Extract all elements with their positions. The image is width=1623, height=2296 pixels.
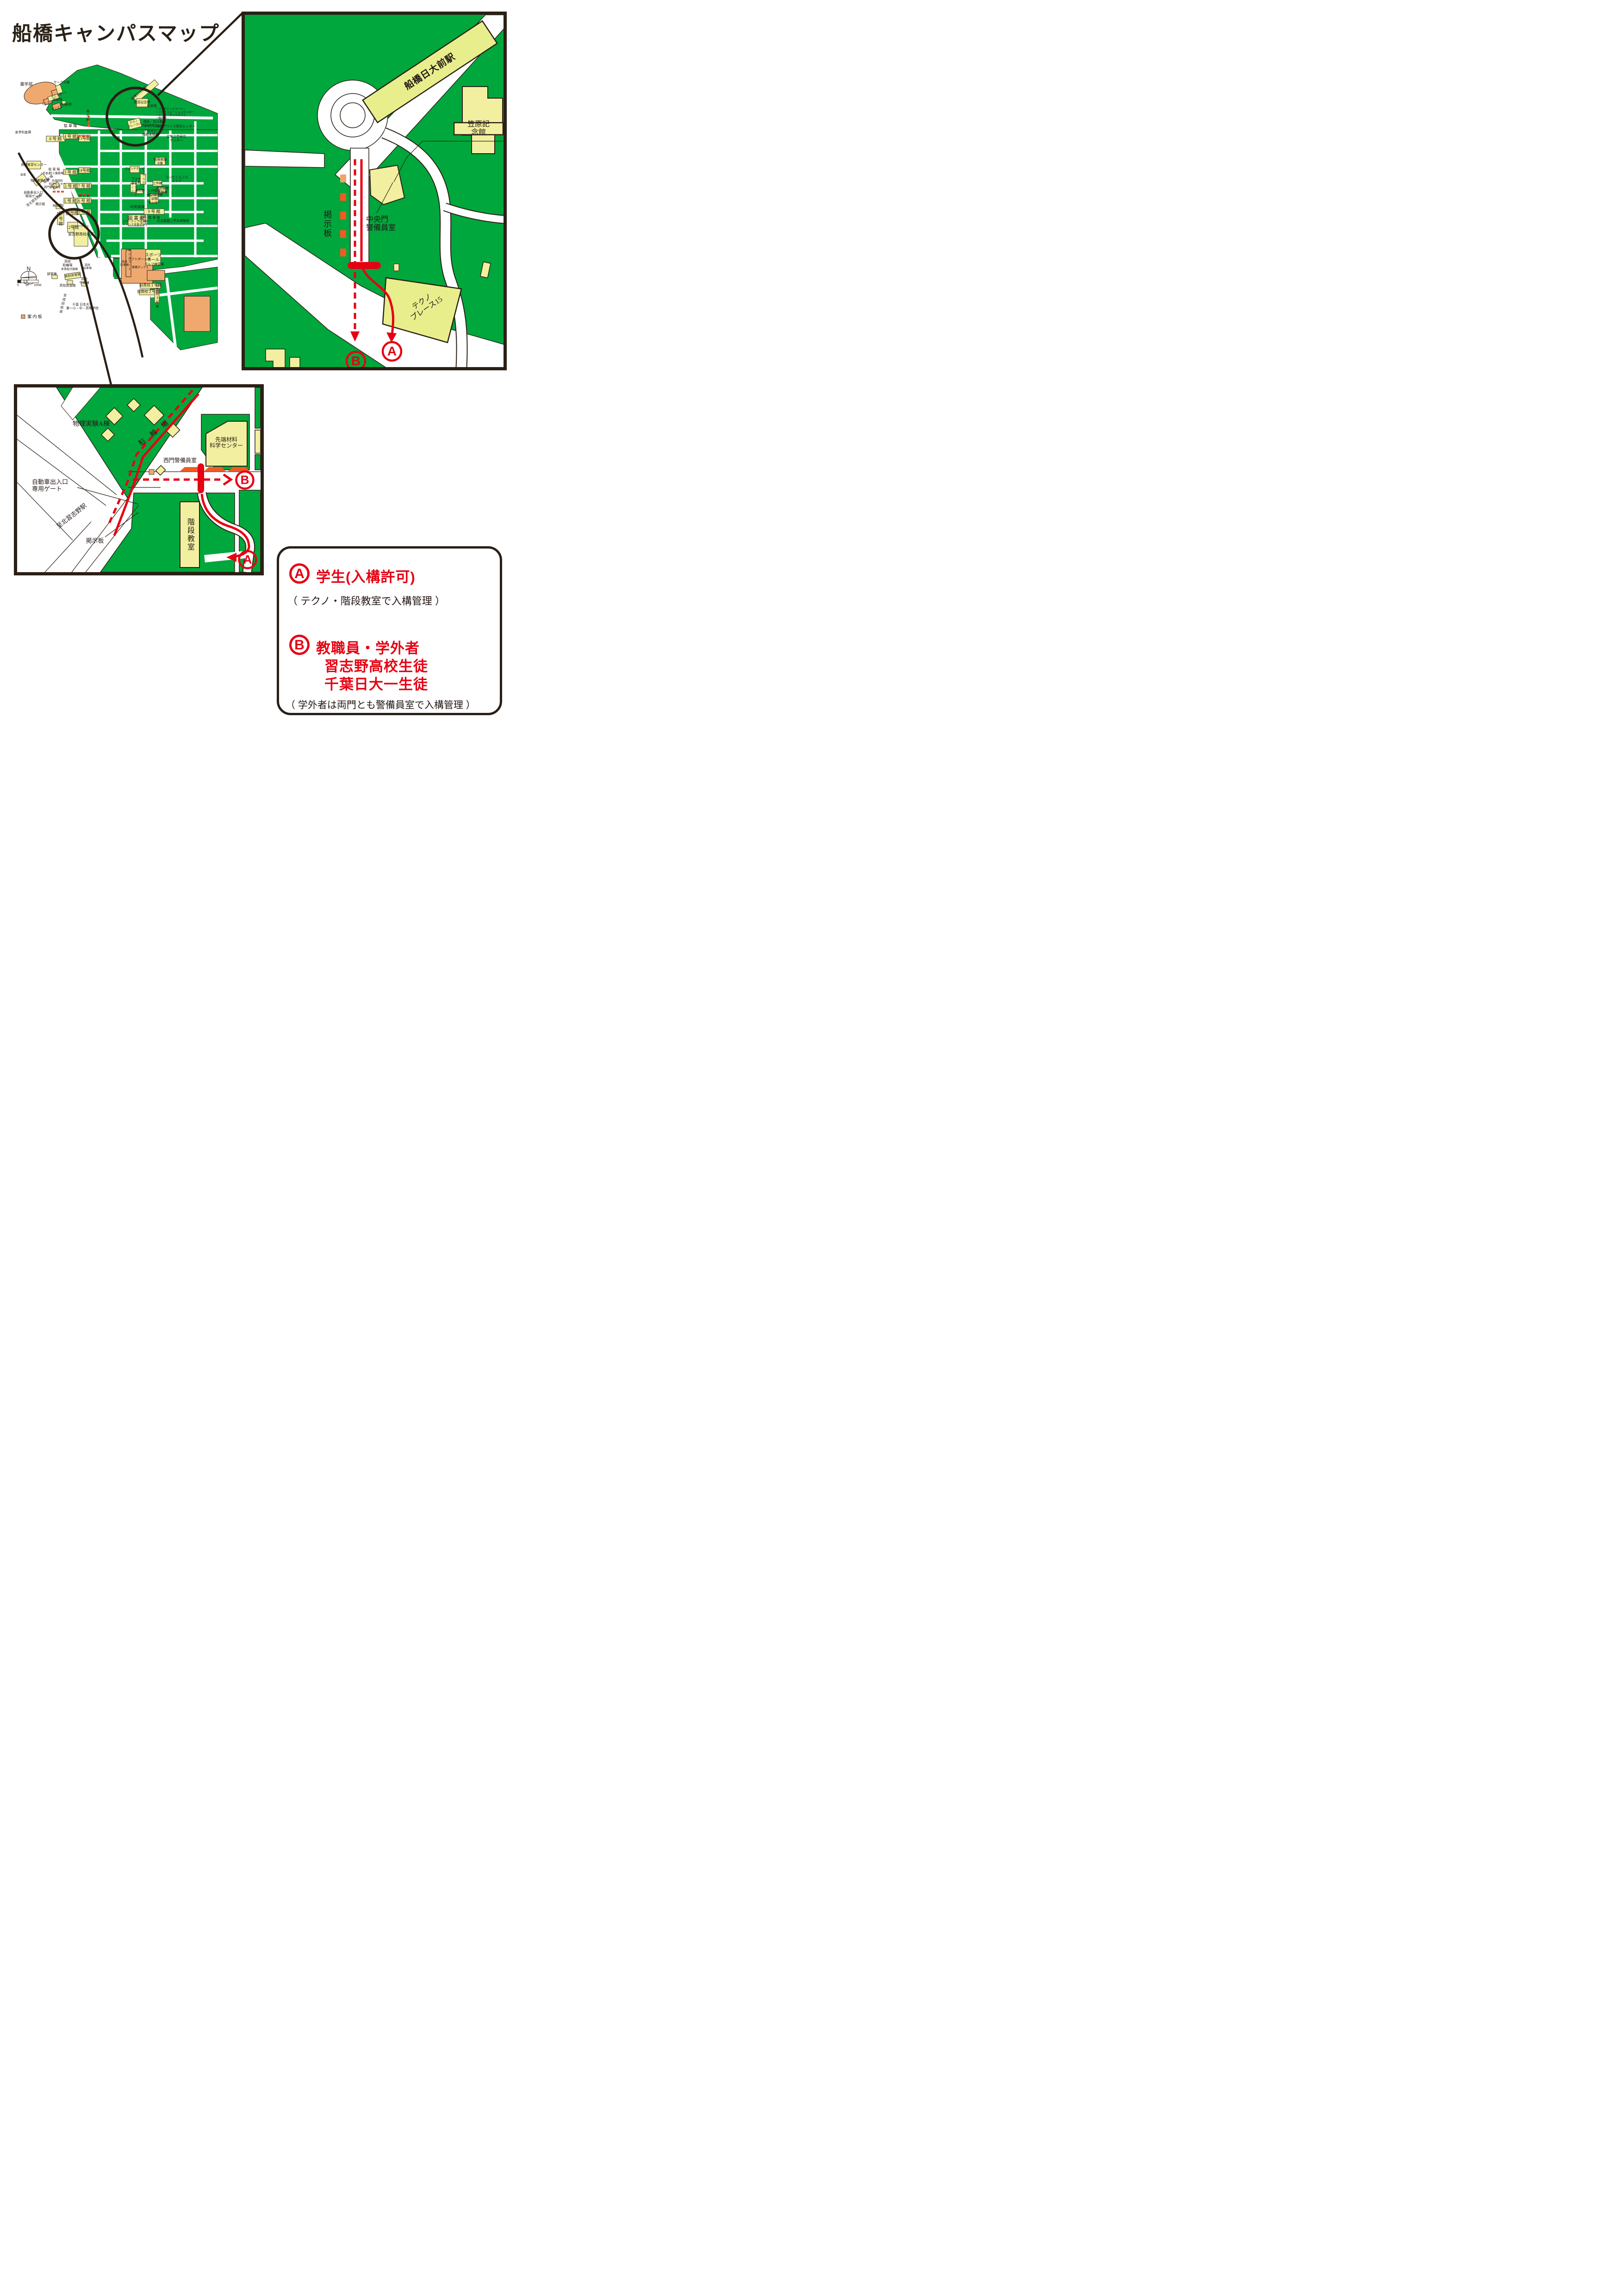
label-conbini: コンビニエンス ストア	[166, 176, 188, 183]
label-b13: 13号館	[78, 136, 90, 141]
west-seimon-label: 西門警備員室	[163, 457, 197, 463]
west-route-b-letter: B	[241, 473, 249, 487]
label-b8: 8 号 館	[49, 137, 62, 141]
legend-a-title: 学生(入構許可)	[316, 565, 416, 586]
label-keijiban-w: 掲示板	[36, 203, 45, 206]
central-keijiban-label: 掲示板	[323, 210, 332, 238]
label-b7: 7 号 館	[78, 184, 90, 188]
west-kaidan-label: 階段教室	[186, 518, 194, 551]
label-b5: 5 号 館	[78, 210, 90, 214]
label-parking-n: 駐 車 場	[64, 125, 77, 129]
legend-a-circle: A	[289, 563, 310, 584]
label-parking-w: 駐 車 場	[49, 168, 60, 172]
page-title: 船橋キャンパスマップ	[12, 18, 220, 46]
label-taiiku-soko: 体育倉庫	[61, 104, 72, 107]
label-taiikukan-fuzoku: 体育館付属棟	[61, 268, 78, 272]
label-hs-parking-l: 高校 駐車場	[120, 261, 129, 267]
label-b2: 2 号 館	[64, 184, 77, 188]
label-b12: 12号館	[66, 225, 79, 230]
label-bushitsu: 部室棟	[47, 273, 57, 276]
label-hs-budokan: 高校武道館	[60, 284, 76, 288]
central-gate-room-label: 中央門 警備員室	[366, 216, 396, 232]
label-hs-parking-r: 高校 駐車場	[83, 264, 92, 270]
label-b4: 4 号 館	[64, 134, 76, 139]
label-golf: ゴルフ練習場	[144, 263, 164, 267]
label-kosaku: 工作棟	[153, 182, 162, 186]
label-hs-shuei: 高校 守衛棟	[80, 278, 89, 285]
label-powerup: パワーアップセンター キャリア支援センター	[123, 220, 150, 226]
label-b10: 10号館	[58, 211, 63, 227]
label-honkan: 習志野高校本館	[68, 233, 94, 237]
west-butsuri-a-label: 物理実験A棟	[73, 421, 110, 428]
label-keijiban-6: 掲 示 板	[79, 194, 90, 198]
central-kasahara-label: 笠原記念館	[466, 120, 491, 137]
west-route-a-letter: A	[243, 553, 252, 567]
legend-b-line3: 千葉日大一生徒	[324, 673, 428, 693]
label-kyu3: 旧高校３号館	[155, 284, 159, 309]
label-kaidan-ov: 階段教室	[53, 205, 64, 208]
label-b14: 14号館	[78, 168, 90, 173]
west-keijiban-label: 掲示板	[86, 538, 104, 545]
label-kakugakka-soko: 各学科倉庫	[15, 131, 31, 135]
label-micro: マイクロ機能デバイス研究センター	[143, 125, 195, 129]
label-b1: 1 号 館	[64, 199, 76, 203]
central-gate-bar	[348, 262, 381, 269]
label-circle-bldg: サークル棟	[54, 81, 70, 85]
label-facilities-list: ・リーディングコーナー ・インフォメーションセンター ・インターネットカフェ ・…	[155, 108, 194, 121]
scale-bar	[18, 280, 38, 283]
west-gate-bar	[198, 463, 204, 493]
label-shakai: 社会基盤工学系実験室	[157, 219, 189, 223]
label-b6: 6 号 館	[78, 199, 90, 203]
label-b11: 11号館	[66, 210, 79, 215]
label-compass-n: N	[27, 266, 31, 272]
label-b3: 3 号 館	[64, 170, 76, 175]
label-keibi-box: 警備ボックス	[132, 267, 149, 270]
label-yakugakubu: 薬学部	[20, 82, 32, 87]
campus-map-page: 船橋キャンパスマップ 薬学部 サークル棟 武道館 テニスコート テニスコート テ…	[0, 0, 510, 722]
label-annaiban: 案 内 板	[27, 314, 42, 319]
inset-west-gate: 物理実験A棟 駐 輪 場 先端材料 科学センター 西門警備員室 自動車出入口 専…	[14, 384, 264, 575]
label-keijiban-n: 掲示板	[86, 110, 89, 122]
label-b9: 9 号 館	[148, 209, 160, 214]
west-sentan-label: 先端材料 科学センター	[210, 437, 243, 449]
scale-zero: 0	[17, 284, 19, 287]
central-route-b-letter: B	[351, 354, 361, 368]
label-faraday: ファラデイ ホール	[130, 179, 136, 197]
label-soko: 倉庫	[20, 174, 26, 177]
label-pascal: パスカルホール	[142, 166, 145, 192]
label-shoko: 書庫	[142, 215, 146, 224]
label-kuki: 空気力学研究 センター	[167, 135, 186, 143]
legend-a-note: （ テクノ・階段教室で入構管理 ）	[287, 593, 445, 608]
scale-hundred: 100M	[34, 284, 42, 287]
label-chiba: 千葉 日本大学 第一小・中・高等学校	[66, 303, 99, 311]
label-doshitsu: 土質及び 機械実験棟	[143, 130, 159, 137]
label-butsuri-b: 物理実験 B棟	[154, 158, 167, 166]
label-hs-churinjo: 高校 駐輪場	[63, 260, 73, 268]
inset-central-gate: 船橋日大前駅 笠原記念館 掲示板 中央門 警備員室 テクノ プレース15 A B	[242, 12, 507, 370]
label-sentan-ov: 先端材料 科学センター	[49, 180, 66, 186]
legend-box: A 学生(入構許可) （ テクノ・階段教室で入構管理 ） B 教職員・学外者 習…	[277, 546, 502, 715]
label-kobai: 購買部	[136, 190, 144, 193]
label-softball: ソフトボール場	[128, 258, 151, 262]
label-teien: 中央庭園	[130, 206, 145, 210]
legend-b-circle: B	[289, 635, 310, 655]
central-route-a-letter: A	[387, 344, 397, 359]
label-sokuryo: 測量実習センター	[21, 163, 47, 167]
annaiban-legend-square	[21, 315, 25, 318]
scale-fifty: 50	[25, 284, 29, 287]
label-ogata: 大型構造物 試験 センター	[147, 193, 163, 204]
label-seimon-ov: 西門警備員室	[44, 187, 61, 190]
label-butsuri-a-ov: 物理実験A棟	[31, 179, 49, 183]
legend-b-note: （ 学外者は両門とも警備員室で入構管理 ）	[286, 698, 476, 711]
inset-central-canvas	[245, 15, 504, 368]
west-gate-label: 自動車出入口 専用ゲート	[32, 479, 68, 492]
